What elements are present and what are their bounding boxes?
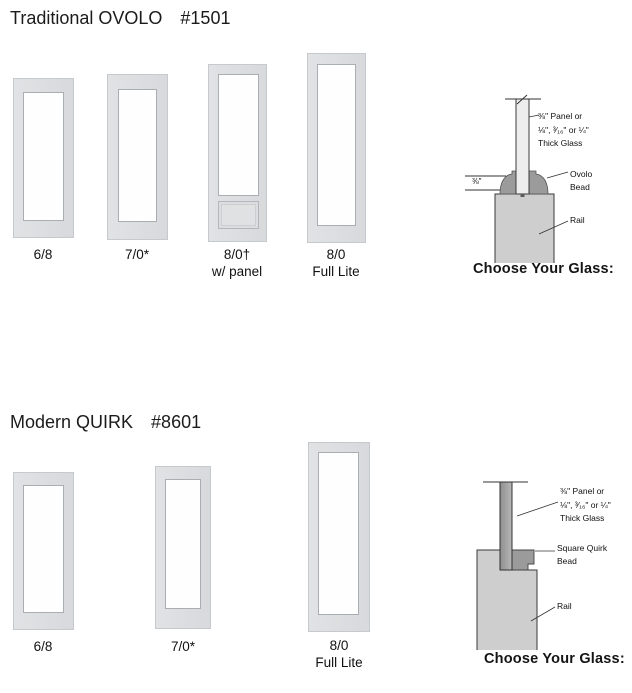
panel-strip: [500, 482, 512, 570]
door-panel: [218, 201, 259, 229]
door-glass: [317, 64, 356, 226]
door-6-8: [13, 472, 74, 630]
bead-label: Ovolo Bead: [570, 168, 592, 194]
panel-note: ⅜" Panel or ⅛", ³⁄₁₆" or ¼" Thick Glass: [560, 485, 611, 526]
door-glass: [23, 485, 64, 613]
door-label: 8/0† w/ panel: [187, 246, 287, 280]
door-6-8: [13, 78, 74, 238]
leader-panel: [517, 502, 558, 516]
choose-glass-heading: Choose Your Glass:: [484, 651, 625, 667]
door-label: 6/8: [0, 246, 93, 263]
rail-label: Rail: [557, 600, 572, 613]
dimension-label: ⅜": [472, 177, 482, 186]
section-title-quirk: Modern QUIRK#8601: [10, 412, 201, 433]
leader-bead: [547, 172, 568, 178]
door-label: 7/0*: [133, 638, 233, 655]
catalog-page: Traditional OVOLO#1501 6/8 7/0* 8/0† w/ …: [0, 0, 632, 693]
door-7-0: [155, 466, 211, 629]
door-8-0-panel: [208, 64, 267, 242]
door-8-0-full-lite: [308, 442, 370, 632]
door-label: 7/0*: [87, 246, 187, 263]
section-title-ovolo: Traditional OVOLO#1501: [10, 8, 230, 29]
door-glass: [318, 452, 359, 615]
choose-glass-heading: Choose Your Glass:: [473, 261, 614, 277]
door-label: 8/0 Full Lite: [286, 246, 386, 280]
door-glass: [218, 74, 259, 196]
door-label: 6/8: [0, 638, 93, 655]
section-number: #1501: [180, 8, 230, 28]
ovolo-bead-left: [500, 171, 516, 194]
door-8-0-full-lite: [307, 53, 366, 243]
section-number: #8601: [151, 412, 201, 432]
door-panel-inner: [221, 204, 256, 226]
door-glass: [118, 89, 157, 222]
panel-notch: [521, 194, 525, 197]
door-glass: [165, 479, 201, 609]
panel-note: ⅜" Panel or ⅛", ³⁄₁₆" or ¼" Thick Glass: [538, 110, 589, 151]
square-quirk-bead: [512, 550, 534, 570]
rail-shape: [495, 194, 554, 263]
section-title-text: Modern QUIRK: [10, 412, 133, 432]
ovolo-bead-right: [529, 171, 548, 194]
door-glass: [23, 92, 64, 221]
panel-strip: [516, 99, 529, 194]
bead-label: Square Quirk Bead: [557, 542, 607, 568]
rail-label: Rail: [570, 214, 585, 227]
door-7-0: [107, 74, 168, 240]
section-title-text: Traditional OVOLO: [10, 8, 162, 28]
door-label: 8/0 Full Lite: [289, 637, 389, 671]
